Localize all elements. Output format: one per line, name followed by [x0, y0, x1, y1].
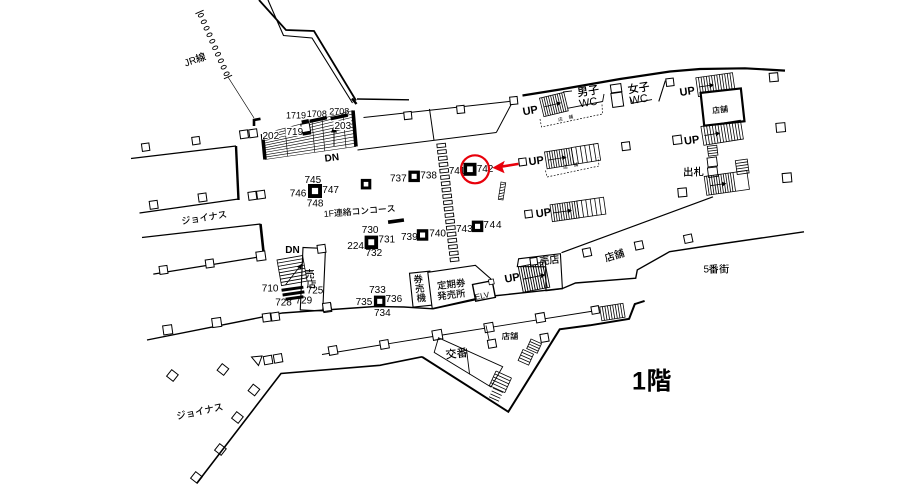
svg-text:739: 739	[401, 228, 418, 243]
svg-text:WC: WC	[578, 93, 599, 112]
svg-text:出札: 出札	[683, 164, 704, 179]
svg-text:5番街: 5番街	[704, 260, 730, 275]
svg-text:DN: DN	[285, 241, 299, 256]
svg-text:売店: 売店	[538, 250, 560, 267]
svg-text:店舗: 店舗	[712, 104, 729, 117]
svg-text:729: 729	[296, 291, 313, 306]
svg-text:UP: UP	[521, 101, 539, 119]
svg-text:735: 735	[356, 293, 373, 308]
svg-text:UP: UP	[503, 268, 521, 286]
svg-text:738: 738	[420, 166, 437, 181]
svg-text:742: 742	[477, 160, 494, 175]
svg-text:743: 743	[456, 220, 473, 235]
svg-text:748: 748	[307, 194, 324, 209]
svg-text:機: 機	[415, 290, 427, 305]
svg-text:746: 746	[290, 185, 307, 200]
svg-text:1階: 1階	[632, 362, 672, 398]
svg-text:店舗: 店舗	[502, 330, 520, 342]
svg-text:737: 737	[390, 170, 407, 185]
svg-text:710: 710	[262, 279, 279, 294]
svg-text:728: 728	[275, 293, 292, 308]
svg-text:736: 736	[386, 290, 403, 305]
svg-text:交番: 交番	[445, 344, 469, 362]
svg-text:2708: 2708	[329, 105, 349, 118]
svg-text:730: 730	[362, 221, 379, 236]
svg-text:224: 224	[347, 237, 364, 252]
svg-text:745: 745	[305, 171, 322, 186]
svg-text:719: 719	[287, 123, 304, 138]
svg-text:747: 747	[322, 181, 339, 196]
svg-text:203: 203	[335, 117, 352, 132]
svg-text:1708: 1708	[307, 107, 327, 120]
svg-text:UP: UP	[535, 203, 552, 221]
svg-text:UP: UP	[683, 131, 700, 149]
svg-text:UP: UP	[527, 151, 544, 169]
svg-text:店: 店	[307, 276, 317, 291]
svg-text:732: 732	[366, 244, 383, 259]
svg-text:UP: UP	[678, 82, 695, 100]
svg-text:1719: 1719	[286, 108, 306, 121]
svg-text:740: 740	[429, 224, 446, 239]
svg-text:DN: DN	[324, 148, 340, 165]
svg-text:202: 202	[263, 127, 280, 142]
svg-text:WC: WC	[628, 90, 649, 109]
svg-text:744: 744	[483, 216, 502, 231]
